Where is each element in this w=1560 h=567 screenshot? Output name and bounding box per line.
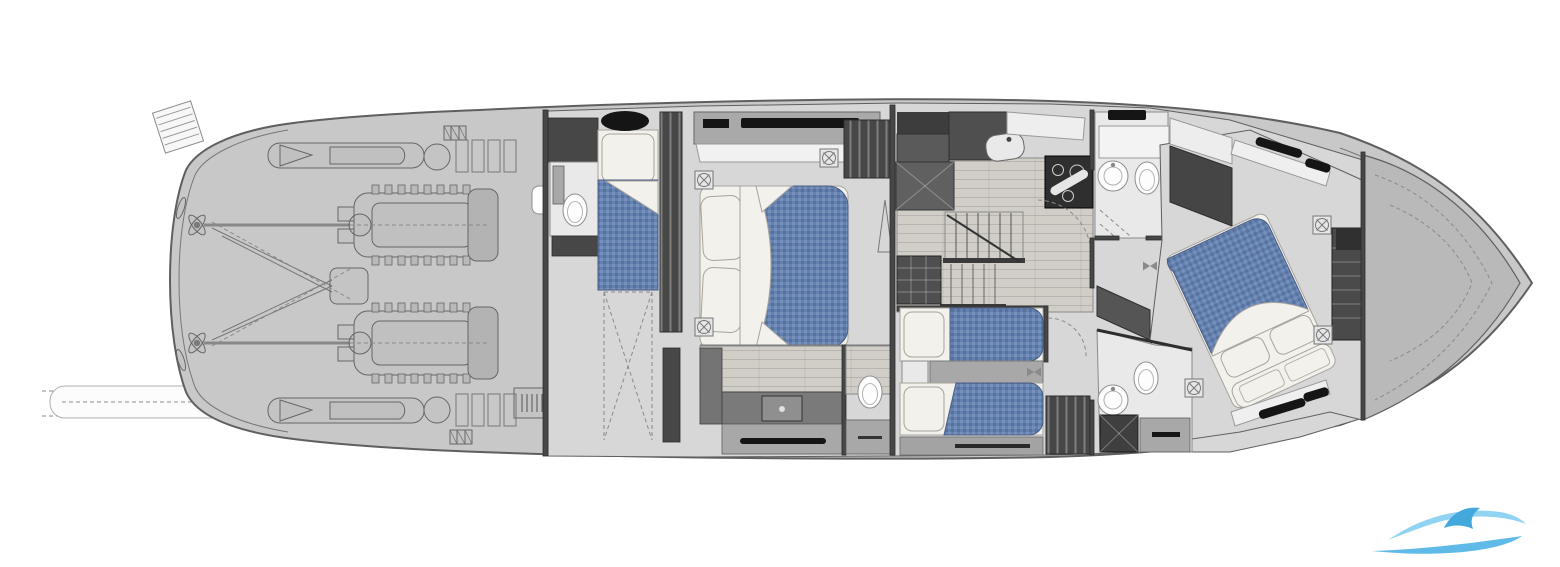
vip-shower <box>1100 415 1138 452</box>
yacht-floorplan-page <box>0 0 1560 567</box>
day-head-toilet <box>1135 162 1159 194</box>
twin-bed-top <box>900 308 1043 361</box>
fan-symbol <box>1313 216 1331 234</box>
master-bed <box>700 186 848 348</box>
dinette-table <box>896 162 954 210</box>
twin-bed-bottom <box>900 383 1043 435</box>
engine-room-bulkhead <box>543 110 548 456</box>
twin-mattress-top <box>950 308 1043 361</box>
twin-mattress-bottom <box>944 383 1043 435</box>
fan-symbol <box>820 149 838 167</box>
engine-port <box>338 185 498 265</box>
muffler-port <box>424 144 450 170</box>
soundbar <box>703 119 729 128</box>
exhaust-tube-starboard <box>268 398 424 423</box>
fan-symbol <box>695 171 713 189</box>
crew-toilet <box>563 194 587 226</box>
deck-plan-drawing <box>0 0 1560 567</box>
master-bathroom <box>700 345 893 455</box>
fan-symbol <box>1314 326 1332 344</box>
vip-toilet <box>1134 362 1158 394</box>
twin-walkway <box>930 361 1043 383</box>
collision-bulkhead <box>1361 152 1365 420</box>
deck-hatch-aft-top <box>444 126 466 140</box>
master-toilet <box>858 376 882 408</box>
master-pillow-top <box>700 195 743 261</box>
fan-symbol <box>695 318 713 336</box>
master-wardrobe <box>844 120 890 178</box>
day-head-cabinet <box>1099 126 1169 158</box>
nightstand <box>902 361 928 383</box>
muffler-starboard <box>424 397 450 423</box>
fan-symbol <box>1185 379 1203 397</box>
vip-sink <box>1098 385 1128 415</box>
crew-pillow <box>602 134 654 182</box>
vip-bathroom <box>1097 330 1203 452</box>
exhaust-tube-port <box>268 143 424 168</box>
drawer-locker <box>897 256 941 304</box>
twin-wardrobe <box>1046 396 1090 454</box>
master-galley-bulkhead <box>890 105 895 455</box>
engine-starboard <box>338 303 498 383</box>
cooktop <box>1045 156 1093 208</box>
deck-hatch-aft-bottom <box>450 430 472 444</box>
crew-master-bulkhead-locker <box>660 112 682 332</box>
crew-berth <box>598 130 658 290</box>
twin-pillow-top <box>904 312 944 357</box>
tv-screen <box>741 118 859 128</box>
deck-hatch-oval <box>601 111 649 131</box>
twin-pillow-bottom <box>904 387 944 431</box>
day-head-sink <box>1098 161 1128 191</box>
towel-rail <box>740 438 826 444</box>
